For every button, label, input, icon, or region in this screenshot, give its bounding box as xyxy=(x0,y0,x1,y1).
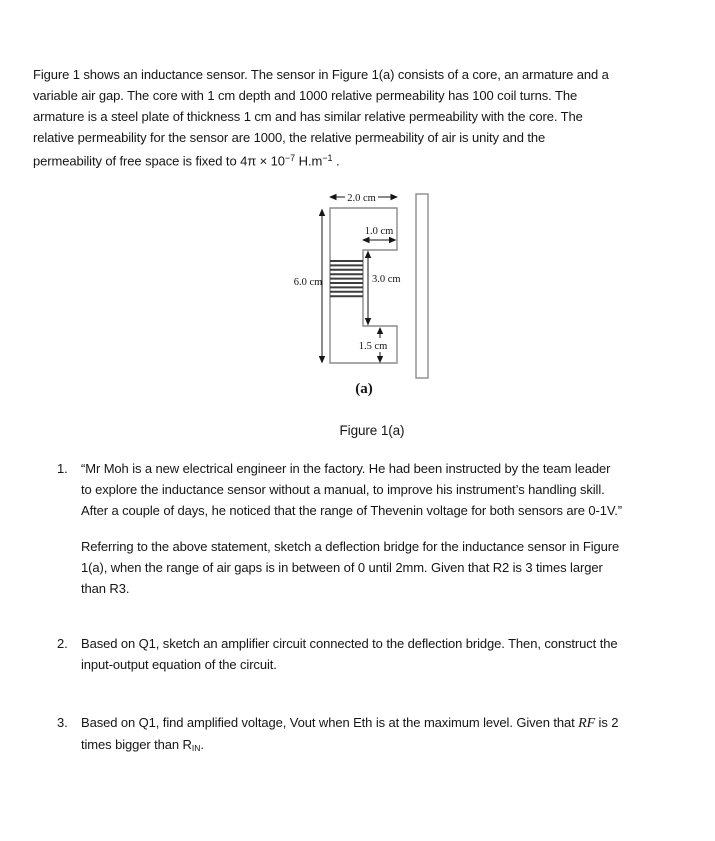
intro-last-line-pre: permeability of free space is fixed to 4… xyxy=(33,154,285,169)
question-2: 2. Based on Q1, sketch an amplifier circ… xyxy=(57,633,706,675)
question-1-number: 1. xyxy=(57,458,81,599)
figure-caption: Figure 1(a) xyxy=(322,423,422,438)
question-1-quote: “Mr Moh is a new electrical engineer in … xyxy=(81,458,706,521)
arrow-down-icon xyxy=(319,356,325,364)
question-1-task: Referring to the above statement, sketch… xyxy=(81,536,706,599)
intro-paragraph-lines: Figure 1 shows an inductance sensor. The… xyxy=(33,64,701,148)
question-3: 3. Based on Q1, find amplified voltage, … xyxy=(57,712,706,759)
arrow-down-icon xyxy=(365,318,371,326)
dim-core-height-label: 6.0 cm xyxy=(294,277,323,288)
question-2-text: Based on Q1, sketch an amplifier circuit… xyxy=(81,633,706,675)
coil-winding xyxy=(330,261,363,296)
document-page: Figure 1 shows an inductance sensor. The… xyxy=(0,0,715,841)
intro-last-line-end: . xyxy=(332,154,339,169)
question-3-line-1: Based on Q1, find amplified voltage, Vou… xyxy=(81,712,706,734)
question-3-line-1-pre: Based on Q1, find amplified voltage, Vou… xyxy=(81,715,578,730)
arrow-up-icon xyxy=(365,251,371,259)
arrow-left-icon xyxy=(329,194,337,200)
question-3-line-2-post: . xyxy=(200,737,204,752)
rf-symbol: RF xyxy=(578,716,595,731)
question-3-line-1-post: is 2 xyxy=(595,715,618,730)
question-1: 1. “Mr Moh is a new electrical engineer … xyxy=(57,458,706,599)
intro-last-line-mid: H.m xyxy=(295,154,322,169)
figure-sub-caption: (a) xyxy=(338,381,390,398)
exponent-minus-1: −1 xyxy=(322,153,332,163)
dim-notch-height-label: 3.0 cm xyxy=(372,274,401,285)
dim-bottom-height-label: 1.5 cm xyxy=(359,341,388,352)
question-2-number: 2. xyxy=(57,633,81,675)
intro-paragraph-last-line: permeability of free space is fixed to 4… xyxy=(33,148,701,172)
exponent-minus-7: −7 xyxy=(285,153,295,163)
intro-paragraph: Figure 1 shows an inductance sensor. The… xyxy=(33,64,701,172)
arrow-up-icon xyxy=(319,209,325,217)
dim-core-width-label: 2.0 cm xyxy=(347,193,376,204)
question-3-number: 3. xyxy=(57,712,81,759)
dim-notch-width-label: 1.0 cm xyxy=(365,226,394,237)
inductance-sensor-figure: 2.0 cm 1.0 cm 6.0 cm 3.0 cm 1 xyxy=(280,185,445,400)
dim-notch-height xyxy=(365,251,371,326)
question-3-line-2: times bigger than RIN. xyxy=(81,734,706,759)
arrow-right-icon xyxy=(391,194,399,200)
armature-plate xyxy=(416,194,428,378)
question-3-line-2-pre: times bigger than R xyxy=(81,737,192,752)
